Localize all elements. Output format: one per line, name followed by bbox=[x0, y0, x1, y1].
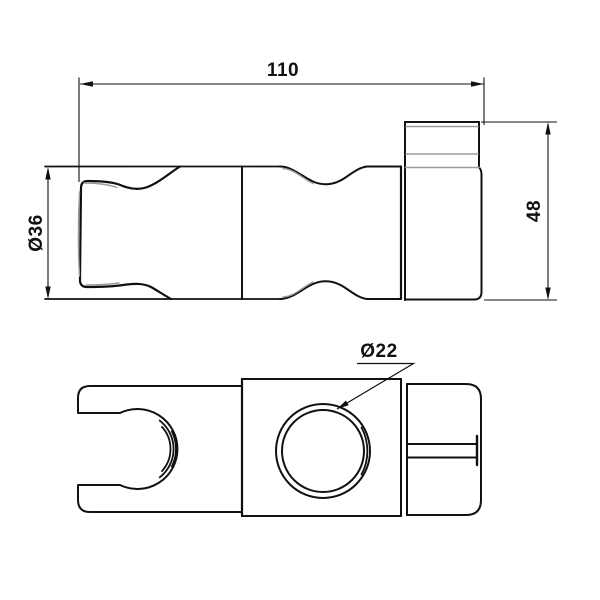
arrowhead-up bbox=[45, 167, 50, 180]
dimension-label-hole-diameter: Ø22 bbox=[329, 341, 429, 363]
socket-arcs bbox=[160, 421, 176, 478]
arrowhead-down bbox=[45, 287, 50, 300]
end-block bbox=[407, 384, 481, 515]
side-view bbox=[45, 122, 482, 300]
dimension-label-end-height: 48 bbox=[524, 161, 546, 261]
rail-hole-inner bbox=[282, 410, 364, 492]
end-nut bbox=[405, 122, 482, 300]
drawing-canvas bbox=[0, 0, 600, 600]
clamp-opening bbox=[78, 386, 242, 512]
arrowhead-right bbox=[471, 81, 484, 86]
arrowhead-left bbox=[80, 81, 93, 86]
arrowhead-up bbox=[545, 122, 550, 135]
technical-drawing-page: 110 Ø36 48 Ø22 bbox=[0, 0, 600, 600]
arrowhead-down bbox=[545, 288, 550, 301]
dimension-label-body-diameter: Ø36 bbox=[26, 183, 48, 283]
front-view bbox=[78, 379, 481, 516]
dimension-label-overall-length: 110 bbox=[233, 60, 333, 82]
clamp-profile bbox=[80, 167, 180, 300]
rail-hole-outer bbox=[276, 404, 370, 498]
dimension-hole-diameter bbox=[337, 364, 414, 410]
